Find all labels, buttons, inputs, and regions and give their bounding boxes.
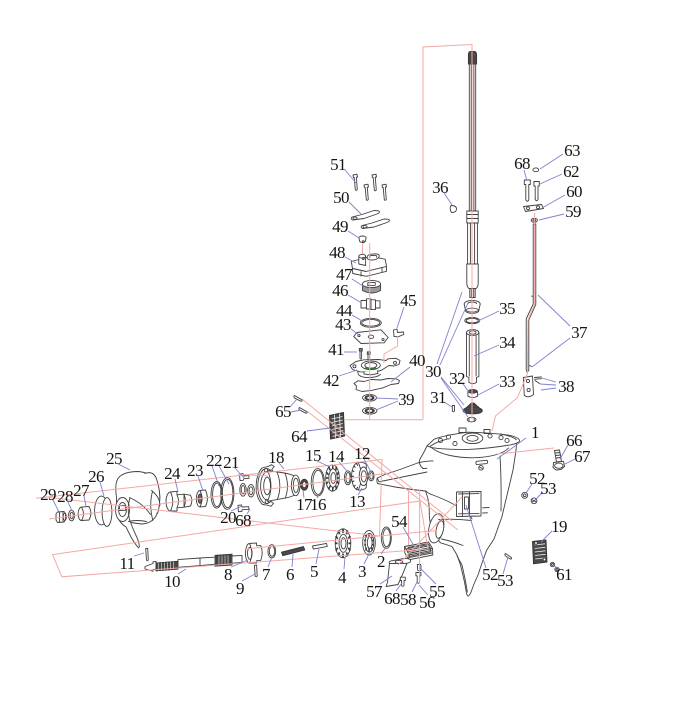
svg-text:20: 20 [220,508,236,527]
svg-text:61: 61 [556,565,572,584]
svg-text:27: 27 [73,481,90,500]
svg-text:58: 58 [400,590,416,609]
svg-text:13: 13 [349,492,365,511]
svg-text:55: 55 [429,582,445,601]
svg-text:6: 6 [286,565,294,584]
svg-text:3: 3 [358,562,366,581]
svg-text:35: 35 [499,299,515,318]
svg-text:29: 29 [40,485,56,504]
svg-text:45: 45 [400,291,416,310]
svg-text:34: 34 [499,333,516,352]
svg-text:1: 1 [531,423,539,442]
svg-text:33: 33 [499,372,515,391]
svg-text:30: 30 [425,362,441,381]
svg-text:8: 8 [224,565,232,584]
svg-text:38: 38 [558,377,574,396]
svg-text:49: 49 [332,217,348,236]
svg-text:41: 41 [328,340,344,359]
svg-text:12: 12 [354,444,370,463]
svg-text:54: 54 [391,512,408,531]
svg-text:63: 63 [564,141,580,160]
svg-text:14: 14 [328,447,345,466]
svg-text:28: 28 [57,487,73,506]
svg-text:60: 60 [566,182,582,201]
svg-text:68: 68 [514,154,530,173]
svg-text:2: 2 [377,552,385,571]
svg-text:67: 67 [574,447,591,466]
svg-text:11: 11 [119,554,134,573]
svg-text:46: 46 [332,281,348,300]
svg-text:26: 26 [88,467,104,486]
svg-text:68: 68 [235,511,251,530]
svg-text:31: 31 [430,388,446,407]
svg-text:50: 50 [333,188,349,207]
svg-text:22: 22 [206,451,222,470]
svg-text:5: 5 [310,562,318,581]
svg-text:39: 39 [398,390,414,409]
svg-text:25: 25 [106,449,122,468]
svg-text:16: 16 [310,495,326,514]
svg-text:32: 32 [449,369,465,388]
svg-text:43: 43 [335,315,351,334]
svg-text:42: 42 [323,371,339,390]
svg-text:7: 7 [262,565,271,584]
svg-text:10: 10 [164,572,180,591]
svg-text:53: 53 [540,479,556,498]
svg-text:24: 24 [164,464,181,483]
svg-text:40: 40 [409,351,425,370]
svg-text:21: 21 [223,453,239,472]
svg-text:48: 48 [329,243,345,262]
svg-text:64: 64 [291,427,308,446]
svg-text:59: 59 [565,202,581,221]
svg-text:62: 62 [563,162,579,181]
svg-text:52: 52 [482,565,498,584]
svg-text:19: 19 [551,517,567,536]
svg-text:51: 51 [330,155,346,174]
svg-text:23: 23 [187,461,203,480]
svg-text:18: 18 [268,448,284,467]
svg-text:37: 37 [571,323,588,342]
svg-text:15: 15 [305,446,321,465]
svg-text:53: 53 [497,571,513,590]
svg-text:4: 4 [338,568,347,587]
svg-text:65: 65 [275,402,291,421]
svg-text:57: 57 [366,582,383,601]
svg-text:9: 9 [236,579,244,598]
svg-text:36: 36 [432,178,448,197]
svg-text:68: 68 [384,589,400,608]
